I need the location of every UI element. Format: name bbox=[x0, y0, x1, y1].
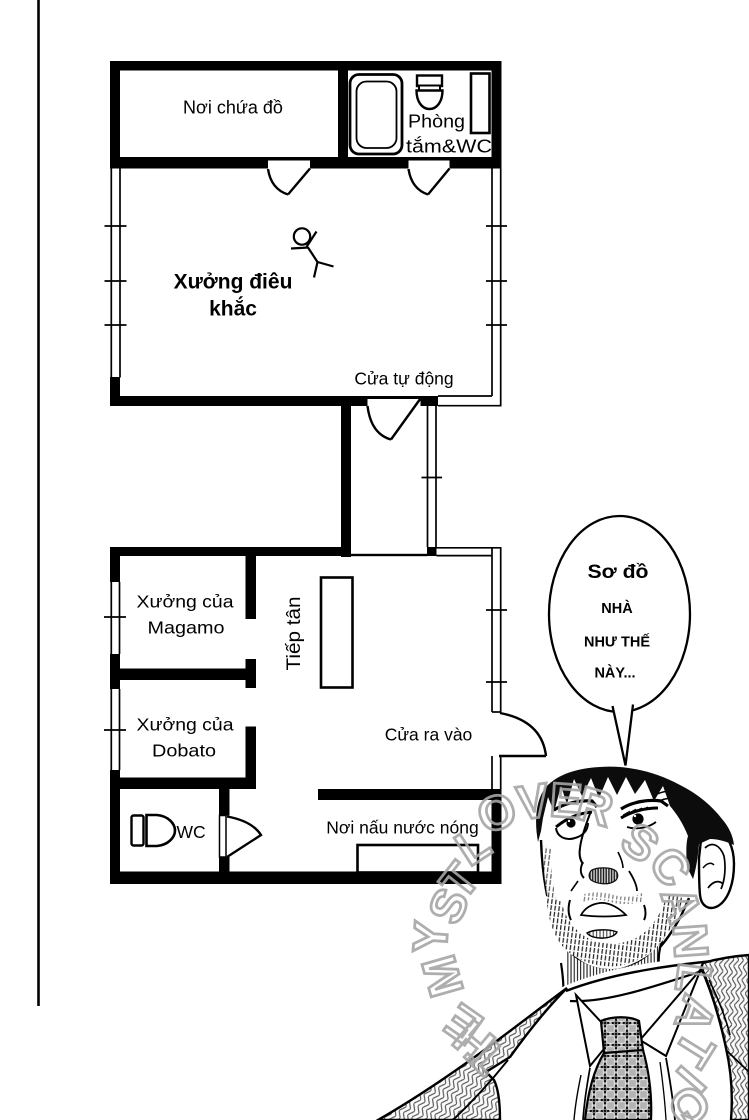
svg-text:Dobato: Dobato bbox=[152, 741, 216, 761]
svg-text:V: V bbox=[514, 774, 553, 831]
svg-text:Y: Y bbox=[404, 919, 459, 955]
svg-text:WC: WC bbox=[177, 822, 206, 842]
svg-text:N: N bbox=[662, 922, 717, 960]
svg-text:khắc: khắc bbox=[209, 297, 257, 321]
svg-text:Phòng: Phòng bbox=[408, 112, 465, 132]
svg-text:Tiếp tân: Tiếp tân bbox=[284, 597, 305, 671]
svg-text:tắm&WC: tắm&WC bbox=[406, 136, 492, 157]
svg-text:Cửa tự động: Cửa tự động bbox=[354, 369, 453, 389]
svg-text:Cửa ra vào: Cửa ra vào bbox=[385, 725, 473, 745]
svg-text:NHƯ THẾ: NHƯ THẾ bbox=[584, 634, 650, 651]
svg-text:NHÀ: NHÀ bbox=[601, 600, 633, 617]
svg-text:Xưởng điêu: Xưởng điêu bbox=[174, 271, 293, 294]
svg-text:Nơi chứa đồ: Nơi chứa đồ bbox=[183, 98, 283, 118]
svg-text:NÀY...: NÀY... bbox=[594, 665, 635, 682]
svg-text:Magamo: Magamo bbox=[148, 618, 225, 638]
svg-text:Sơ đồ: Sơ đồ bbox=[588, 561, 649, 583]
svg-text:Xưởng của: Xưởng của bbox=[137, 592, 234, 612]
svg-text:Xưởng của: Xưởng của bbox=[137, 715, 234, 735]
svg-text:L: L bbox=[664, 960, 721, 996]
